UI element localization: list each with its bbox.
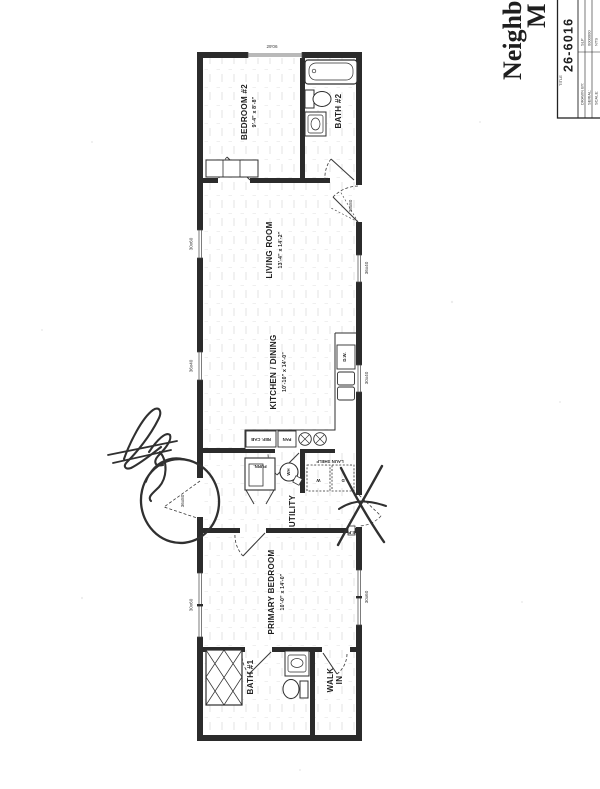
window-top [248, 52, 302, 58]
window-right-primary [356, 570, 362, 625]
walkin-label-1: WALK [326, 668, 335, 693]
window-left-primary [197, 573, 203, 637]
walkin-label-2: IN [335, 676, 344, 685]
sink-bowl [311, 118, 320, 130]
field-value-serial: 0000000 [587, 30, 592, 46]
ref-cab-label: REF. CAB [251, 437, 271, 442]
tub-drain [312, 69, 316, 73]
field-label-drawnby: DRAWN BY: [580, 83, 585, 105]
field-value-scale: NTS [594, 38, 599, 46]
floorplan-drawing: 29'06 30x60 36x40 30x60 36x80 36x40 30x4… [0, 0, 600, 789]
electrical-panel-label: E.P. [348, 530, 356, 535]
field-label-scale: SCALE: [594, 91, 599, 105]
right-primary-window-label: 30x60 [364, 590, 369, 603]
dryer-label: D [341, 478, 344, 483]
primary-label: PRIMARY BEDROOM [267, 549, 276, 634]
utility-exterior-door [356, 495, 381, 527]
window-right-kitchen [356, 365, 362, 392]
dishwasher-label: D.W. [342, 352, 347, 361]
title-label: TITLE [558, 75, 563, 86]
utility-label: UTILITY [288, 494, 297, 527]
scanned-floorplan-page: 29'06 30x60 36x40 30x60 36x80 36x40 30x4… [0, 0, 600, 789]
kitchen-label: KITCHEN / DINING [269, 334, 278, 409]
bedroom2-closet [206, 160, 258, 177]
laun-shelf-label: LAUN SHELF [316, 459, 344, 464]
window-right-living [356, 255, 362, 282]
left-living-window-label: 30x60 [189, 237, 194, 250]
sink-basin-2 [338, 387, 355, 400]
bedroom2-label: BEDROOM #2 [240, 84, 249, 140]
furnace-label: FURN. [253, 464, 266, 469]
toilet-tank [300, 681, 308, 698]
floor-plan: 29'06 30x60 36x40 30x60 36x80 36x40 30x4… [164, 44, 381, 741]
toilet-bowl [313, 92, 331, 107]
top-window-label: 29'06 [266, 44, 278, 49]
field-value-drawnby: SLP [580, 38, 585, 46]
pantry-label: PAN [283, 437, 292, 442]
left-primary-window-label: 30x60 [189, 598, 194, 611]
plan-number: 26-6016 [562, 18, 576, 72]
sink-basin-1 [338, 372, 355, 385]
circled-door-label: 36x80 [180, 494, 185, 507]
kitchen-dims: 10'-10" x 14'-0" [282, 352, 288, 392]
water-heater-label: WH [286, 468, 291, 475]
right-living-window-label: 36x40 [364, 261, 369, 274]
primary-dims: 10'-0" x 14'-0" [280, 573, 286, 610]
left-kitchen-window-label: 36x40 [189, 359, 194, 372]
bath2-label: BATH #2 [334, 93, 343, 128]
living-dims: 13'-4" x 14'-2" [278, 231, 284, 268]
right-kitchen-window-label: 30x40 [364, 371, 369, 384]
living-label: LIVING ROOM [265, 221, 274, 278]
model-name-line2: M [522, 3, 551, 28]
field-label-serial: SERIAL: [587, 90, 592, 105]
sink-bowl [291, 659, 303, 668]
window-left-kitchen [197, 352, 203, 380]
toilet-bowl [283, 680, 299, 699]
bedroom2-dims: 9'-4" x 8'-8" [252, 96, 258, 127]
bath1-label: BATH #1 [246, 659, 255, 694]
title-block-area: Neighborhood M 900 Square TITLE 26-6016 … [498, 0, 600, 118]
window-left-living [197, 230, 203, 258]
entry-door-label: 36x80 [348, 199, 353, 212]
